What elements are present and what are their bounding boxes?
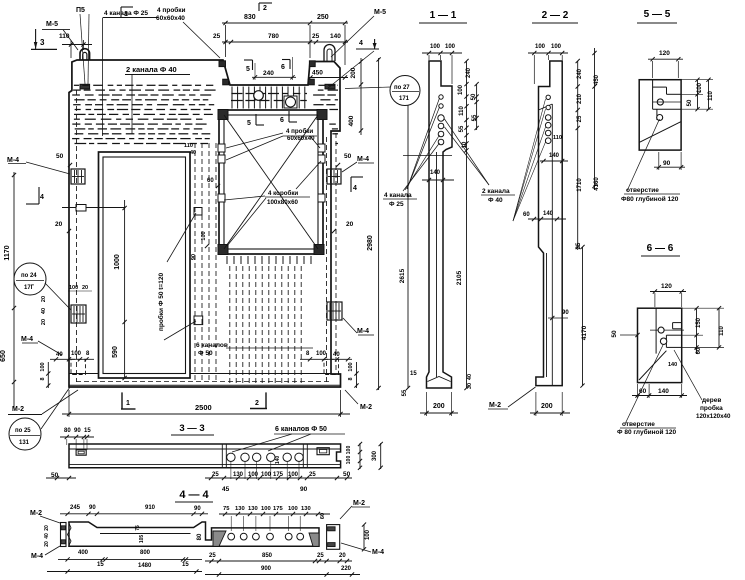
svg-text:17Г: 17Г: [24, 285, 35, 291]
svg-text:60х60х40: 60х60х40: [156, 15, 185, 22]
svg-text:60: 60: [696, 347, 702, 354]
svg-text:50: 50: [56, 153, 64, 160]
svg-text:240: 240: [466, 67, 472, 78]
svg-text:100: 100: [346, 446, 352, 455]
svg-text:90: 90: [300, 486, 308, 493]
svg-text:60: 60: [639, 388, 647, 395]
svg-text:2615: 2615: [399, 268, 406, 283]
svg-text:отверстие: отверстие: [626, 187, 659, 194]
svg-text:110: 110: [719, 326, 725, 336]
svg-text:М-2: М-2: [360, 404, 372, 411]
svg-text:1170: 1170: [4, 245, 11, 260]
svg-text:450: 450: [312, 70, 323, 77]
svg-text:55: 55: [402, 389, 408, 396]
svg-text:300: 300: [372, 450, 378, 461]
svg-text:90: 90: [663, 160, 671, 167]
svg-text:120: 120: [659, 50, 670, 57]
svg-text:20: 20: [44, 525, 50, 531]
svg-text:210: 210: [577, 93, 583, 104]
svg-text:80: 80: [64, 428, 71, 434]
svg-text:245: 245: [70, 505, 81, 511]
svg-text:М-4: М-4: [7, 157, 19, 164]
svg-text:220: 220: [341, 566, 352, 572]
svg-text:100: 100: [430, 44, 441, 50]
svg-text:15: 15: [97, 562, 104, 568]
svg-text:20: 20: [82, 285, 88, 291]
svg-text:2 — 2: 2 — 2: [542, 10, 569, 21]
svg-text:90: 90: [74, 428, 81, 434]
svg-text:110: 110: [459, 106, 465, 116]
svg-text:400: 400: [348, 115, 355, 126]
svg-text:75: 75: [223, 506, 230, 512]
svg-text:50: 50: [343, 471, 351, 478]
svg-text:2105: 2105: [456, 270, 463, 285]
svg-text:Ф80 глубиной 120: Ф80 глубиной 120: [621, 195, 679, 203]
svg-text:4 пробки: 4 пробки: [286, 128, 313, 135]
svg-text:15: 15: [410, 371, 417, 377]
svg-text:240: 240: [263, 70, 274, 77]
svg-text:800: 800: [140, 550, 151, 556]
svg-text:850: 850: [262, 553, 273, 559]
svg-text:110: 110: [553, 135, 562, 141]
svg-text:по 27: по 27: [394, 85, 410, 91]
svg-text:100: 100: [551, 44, 562, 50]
svg-text:8: 8: [40, 377, 46, 380]
svg-text:45: 45: [222, 486, 230, 493]
svg-text:25: 25: [309, 472, 316, 478]
svg-text:110: 110: [59, 33, 70, 40]
svg-text:150: 150: [696, 317, 702, 328]
svg-text:20: 20: [346, 221, 354, 228]
svg-text:М-2: М-2: [489, 402, 501, 409]
svg-text:6: 6: [281, 64, 285, 71]
svg-text:2 канала Ф 40: 2 канала Ф 40: [126, 65, 177, 74]
svg-text:15: 15: [182, 562, 189, 568]
svg-text:140: 140: [275, 456, 281, 465]
svg-text:пробка: пробка: [700, 404, 723, 412]
svg-text:200: 200: [541, 403, 553, 410]
svg-text:100: 100: [69, 285, 78, 291]
svg-text:55: 55: [472, 114, 478, 121]
svg-text:120х120х40: 120х120х40: [696, 413, 731, 420]
svg-text:40: 40: [41, 308, 47, 314]
svg-text:780: 780: [268, 33, 279, 40]
svg-text:пробки Ф 50 t=120: пробки Ф 50 t=120: [157, 273, 165, 332]
svg-text:4: 4: [359, 40, 363, 47]
svg-text:М-5: М-5: [374, 9, 386, 16]
svg-text:2980: 2980: [367, 235, 374, 251]
svg-text:1480: 1480: [138, 563, 152, 569]
svg-text:25: 25: [577, 115, 583, 122]
svg-text:4: 4: [40, 194, 44, 201]
svg-text:171: 171: [399, 96, 410, 102]
svg-text:6 — 6: 6 — 6: [647, 243, 674, 254]
svg-text:130: 130: [248, 506, 258, 512]
svg-text:60: 60: [207, 178, 214, 184]
svg-text:М-5: М-5: [46, 21, 58, 28]
svg-text:5: 5: [246, 66, 250, 73]
svg-text:3: 3: [40, 38, 45, 47]
svg-text:140: 140: [330, 33, 341, 40]
svg-text:П5: П5: [76, 7, 85, 14]
svg-text:Ф 40: Ф 40: [488, 197, 503, 204]
svg-text:М-4: М-4: [31, 553, 43, 560]
svg-text:250: 250: [317, 14, 329, 21]
svg-text:200: 200: [350, 67, 357, 78]
svg-text:650: 650: [0, 350, 7, 362]
svg-text:Ф 50: Ф 50: [198, 350, 213, 357]
svg-text:900: 900: [261, 566, 272, 572]
svg-text:4160: 4160: [594, 177, 600, 191]
svg-text:6 каналов Ф 50: 6 каналов Ф 50: [275, 426, 327, 433]
svg-text:400: 400: [78, 550, 89, 556]
svg-text:20: 20: [339, 553, 346, 559]
svg-text:131: 131: [19, 440, 30, 446]
svg-text:110: 110: [708, 91, 714, 101]
svg-text:1: 1: [124, 11, 128, 18]
svg-text:20: 20: [41, 296, 47, 302]
svg-text:50: 50: [471, 93, 477, 100]
svg-text:М-2: М-2: [353, 500, 365, 507]
svg-text:100: 100: [346, 456, 352, 465]
svg-text:830: 830: [244, 14, 256, 21]
svg-text:М-4: М-4: [357, 156, 369, 163]
svg-text:100: 100: [348, 362, 354, 371]
svg-text:5: 5: [247, 120, 251, 127]
svg-text:1 — 1: 1 — 1: [430, 10, 457, 21]
svg-text:100: 100: [261, 472, 272, 478]
svg-text:80: 80: [197, 533, 203, 540]
svg-text:4170: 4170: [581, 325, 588, 340]
svg-text:140: 140: [668, 362, 677, 368]
svg-text:130: 130: [235, 506, 245, 512]
svg-text:140: 140: [543, 211, 554, 217]
svg-text:отверстие: отверстие: [622, 421, 655, 428]
svg-text:40: 40: [56, 352, 63, 358]
svg-text:по 24: по 24: [21, 273, 37, 279]
svg-text:2 канала: 2 канала: [482, 188, 510, 195]
svg-text:30: 30: [467, 383, 473, 389]
svg-text:20: 20: [44, 541, 50, 547]
svg-text:130: 130: [301, 506, 311, 512]
svg-text:М-4: М-4: [21, 336, 33, 343]
svg-text:100: 100: [201, 231, 207, 240]
svg-text:8: 8: [348, 377, 354, 380]
svg-text:60: 60: [320, 513, 326, 519]
svg-text:100: 100: [40, 362, 46, 371]
svg-text:100: 100: [316, 351, 327, 357]
svg-text:200: 200: [433, 403, 445, 410]
svg-text:1: 1: [126, 400, 130, 407]
svg-text:105: 105: [139, 535, 145, 544]
svg-text:6: 6: [280, 117, 284, 124]
svg-text:50: 50: [611, 330, 618, 338]
svg-text:Ф 25: Ф 25: [389, 201, 404, 208]
svg-text:по 25: по 25: [15, 428, 31, 434]
svg-text:90: 90: [89, 505, 96, 511]
svg-text:4 коробки: 4 коробки: [268, 190, 298, 197]
svg-text:25: 25: [212, 472, 219, 478]
svg-text:75: 75: [135, 525, 141, 531]
svg-text:6 каналов: 6 каналов: [196, 342, 228, 349]
svg-text:М-2: М-2: [12, 406, 24, 413]
svg-text:25: 25: [312, 33, 320, 40]
svg-text:Ф 80 глубиной 120: Ф 80 глубиной 120: [617, 428, 677, 436]
svg-text:450: 450: [594, 74, 600, 85]
svg-text:3 — 3: 3 — 3: [179, 423, 204, 434]
svg-text:120: 120: [661, 283, 672, 290]
svg-text:15: 15: [84, 428, 91, 434]
svg-text:М-4: М-4: [357, 328, 369, 335]
svg-text:40: 40: [44, 533, 50, 539]
svg-text:4 пробки: 4 пробки: [157, 6, 186, 14]
svg-text:100: 100: [535, 44, 546, 50]
svg-text:4: 4: [353, 185, 357, 192]
svg-text:50: 50: [687, 99, 693, 106]
svg-text:140: 140: [658, 388, 669, 395]
svg-text:100х80х60: 100х80х60: [267, 199, 299, 206]
svg-text:2: 2: [255, 400, 259, 407]
svg-text:20: 20: [41, 319, 47, 325]
svg-text:60: 60: [523, 212, 530, 218]
svg-text:50: 50: [344, 153, 352, 160]
svg-text:40: 40: [333, 352, 340, 358]
svg-text:5 — 5: 5 — 5: [644, 9, 671, 20]
svg-text:40: 40: [190, 150, 196, 156]
svg-text:910: 910: [145, 505, 156, 511]
svg-text:25: 25: [317, 553, 324, 559]
svg-text:140: 140: [549, 153, 560, 159]
svg-text:240: 240: [577, 68, 583, 79]
svg-text:25: 25: [209, 553, 216, 559]
svg-text:90: 90: [562, 310, 569, 316]
svg-text:дерев: дерев: [702, 397, 721, 404]
svg-text:55: 55: [459, 125, 465, 132]
svg-text:1710: 1710: [577, 178, 583, 192]
svg-text:110: 110: [184, 143, 193, 149]
svg-text:2: 2: [263, 5, 267, 12]
svg-text:10: 10: [462, 141, 468, 148]
svg-text:100: 100: [288, 506, 298, 512]
svg-text:100: 100: [697, 82, 703, 93]
svg-text:100: 100: [365, 529, 371, 540]
svg-text:90: 90: [194, 506, 201, 512]
svg-text:175: 175: [273, 506, 283, 512]
svg-text:100: 100: [261, 506, 271, 512]
svg-text:2500: 2500: [195, 403, 212, 412]
svg-text:20: 20: [55, 221, 63, 228]
svg-text:590: 590: [112, 346, 119, 358]
svg-text:4 — 4: 4 — 4: [179, 489, 209, 501]
svg-text:90: 90: [191, 254, 197, 260]
svg-text:25: 25: [213, 33, 221, 40]
svg-text:140: 140: [430, 170, 441, 176]
svg-text:100: 100: [445, 44, 456, 50]
svg-text:1000: 1000: [114, 254, 121, 270]
svg-text:40: 40: [467, 374, 473, 380]
svg-text:100: 100: [458, 84, 464, 95]
svg-text:100: 100: [71, 351, 82, 357]
svg-text:М-4: М-4: [372, 549, 384, 556]
